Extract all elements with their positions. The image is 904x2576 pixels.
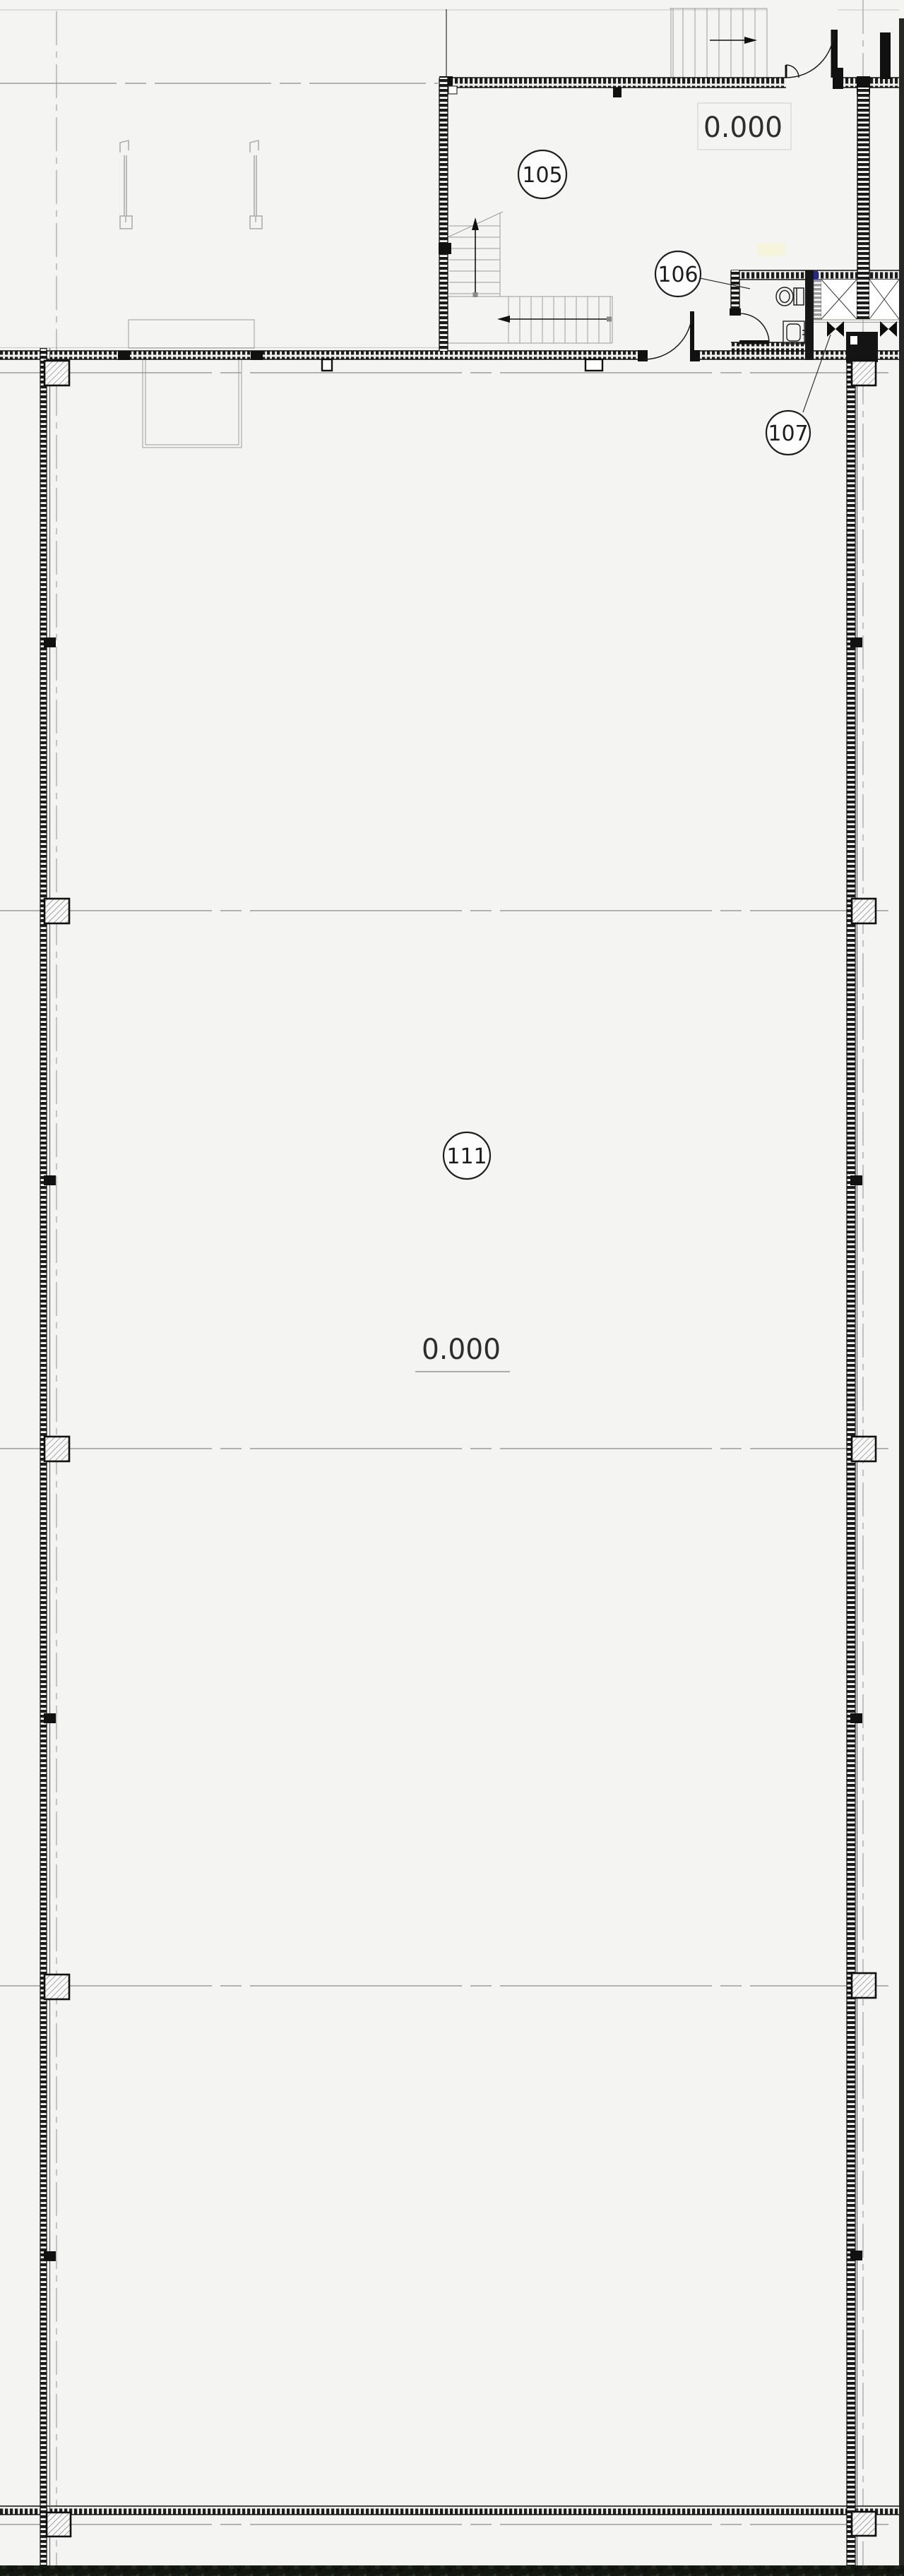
downpipe-icon [250,140,262,229]
elevation-label-hall: 0.000 [415,1334,510,1372]
pilaster-icon [44,637,56,647]
pilaster-icon [850,637,862,647]
shaft-sill-lines [814,320,899,323]
exterior-stair [670,8,767,78]
right-wall [847,360,857,2576]
stair-left-arrow-icon [497,316,612,323]
room-number: 107 [768,421,808,446]
stair-up-arrow-icon [472,217,479,297]
door-swing-icon [786,30,838,78]
sink-icon [783,321,806,344]
walls-vertical [40,78,869,2576]
room-tag-106: 106 [655,251,701,296]
room-tag-107: 107 [766,411,810,455]
column-icon [47,2512,71,2536]
top-facade-wall [439,32,899,97]
floor-plan-sheet: 105 106 107 111 0.000 0.000 [0,0,904,2576]
bottom-dark-strip [0,2565,904,2576]
column-icon [852,899,876,923]
pilaster-icon [850,1713,862,1723]
pilaster-icon [850,1175,862,1185]
elevator-door-bowtie-icon [827,321,844,337]
room-number: 111 [446,1144,487,1169]
bottom-wall [0,2506,904,2515]
door-swing-icon [739,313,769,345]
highlight-smudge [757,243,785,256]
elevation-value: 0.000 [422,1334,501,1366]
wall-pilasters [44,637,862,2261]
canopy-edge-lines [0,10,899,348]
room-number: 105 [522,163,562,188]
floor-plan-svg: 105 106 107 111 0.000 0.000 [0,0,904,2576]
entrance-canopy [129,320,254,348]
right-edge-band [899,18,904,2576]
column-icon [44,1437,69,1461]
room-tag-111: 111 [444,1132,490,1179]
elevator-shaft-icon [869,280,899,319]
walls-horizontal [0,32,904,2515]
elevator-shafts [814,280,899,362]
pilaster-icon [44,1713,56,1723]
toilet-icon [776,287,804,306]
hall-top-wall [0,350,904,371]
room105-left-wall [439,78,451,351]
room-tag-105: 105 [518,150,566,198]
column-icon [852,361,876,385]
column-icon [44,899,69,923]
room106-right-wall [805,270,814,360]
downpipe-icon [120,140,132,229]
wall-stub [585,359,602,371]
column-icon [852,2512,876,2536]
wall-stub [322,359,332,371]
elevation-value: 0.000 [703,112,783,144]
shaft-wall [814,280,821,319]
column-icon [44,1975,69,1999]
room106-top-wall [731,270,904,280]
elevation-label-upper: 0.000 [698,103,791,150]
right-wall-upper [857,88,869,280]
stair-direction-arrow-icon [710,37,757,44]
room-tags: 105 106 107 111 [444,150,810,1179]
elevator-shaft-icon [821,280,857,319]
room106-left-wall [730,270,741,316]
room-number: 106 [658,263,698,287]
shaft-central-wall [857,280,869,319]
interior-stair [448,212,612,343]
door-swing-icon [644,311,694,359]
pilaster-icon [850,2251,862,2260]
canopy-post [251,351,263,360]
grid-lines [0,0,888,2565]
column-icon [44,361,69,385]
column-icon [852,1973,876,1998]
column-icon [852,1437,876,1461]
pilaster-icon [44,1175,56,1185]
elevator-door-bowtie-icon [880,321,897,337]
canopy-post [118,351,130,360]
pilaster-icon [44,2251,56,2261]
